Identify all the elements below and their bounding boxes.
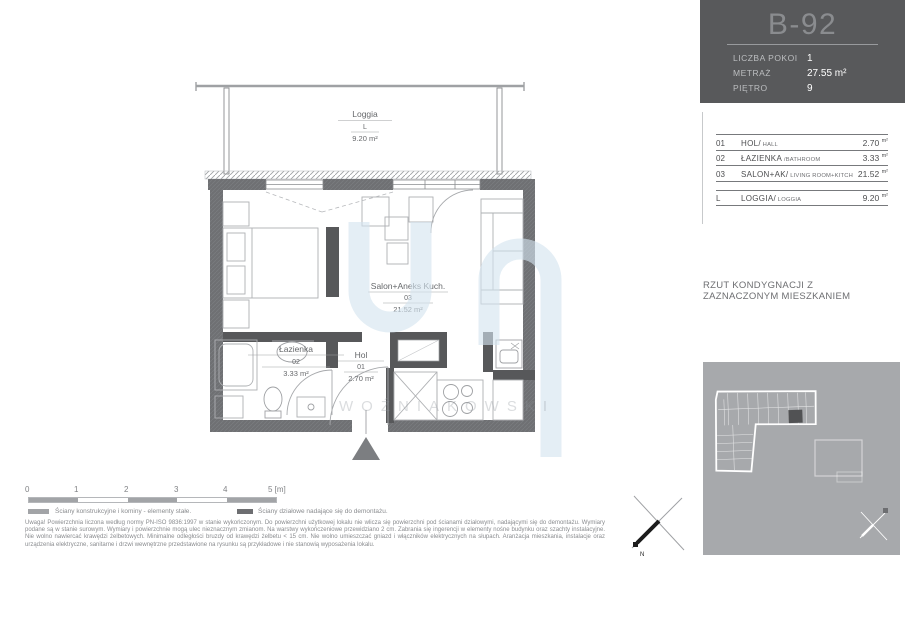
room-number: 02 — [716, 154, 741, 163]
table-row-loggia: L LOGGIA/ LOGGIA 9.20 m² — [716, 190, 888, 207]
legend-partition: Ściany działowe nadające się do demontaż… — [258, 508, 388, 515]
svg-text:Hol: Hol — [355, 350, 368, 360]
room-name: SALON+AK/ LIVING ROOM+KITCH — [741, 170, 858, 179]
wardrobe — [326, 227, 339, 297]
legend-swatch-partition — [237, 509, 253, 514]
loggia-post-left — [224, 88, 229, 174]
north-arrow — [637, 521, 659, 543]
disclaimer-text: Uwaga! Powierzchnia liczona według normy… — [25, 520, 605, 549]
key-building — [714, 388, 819, 473]
meta-row-rooms: LICZBA POKOI 1 — [700, 51, 905, 66]
keyplan-caption: RZUT KONDYGNACJI Z ZAZNACZONYM MIESZKANI… — [703, 281, 850, 302]
scale-segment — [177, 498, 226, 502]
svg-text:L: L — [363, 124, 367, 131]
card-divider — [727, 44, 878, 45]
svg-text:Salon+Aneks Kuch.: Salon+Aneks Kuch. — [371, 281, 445, 291]
toilet — [264, 387, 282, 418]
meta-value: 27.55 m² — [807, 67, 846, 80]
highlighted-unit — [788, 410, 802, 423]
key-map-drawing — [703, 362, 900, 555]
north-label: N — [640, 552, 644, 558]
meta-value: 9 — [807, 82, 813, 95]
room-name: LOGGIA/ LOGGIA — [741, 194, 863, 203]
insulation-hatch — [205, 171, 531, 179]
scale-tick-5: 5 [m] — [268, 485, 286, 494]
room-number: 01 — [716, 139, 741, 148]
room-table: 01 HOL/ HALL 2.70 m² 02 ŁAZIENKA /BATHRO… — [716, 134, 888, 206]
label-hol: Hol 01 2.70 m² — [338, 350, 384, 383]
adjacent-building-outline — [815, 440, 862, 476]
scale-tick-1: 1 — [74, 485, 78, 494]
room-name: HOL/ HALL — [741, 139, 863, 148]
svg-text:2.70 m²: 2.70 m² — [348, 374, 374, 383]
bed — [223, 228, 318, 298]
tilt-window-lines — [266, 192, 393, 212]
room-name: ŁAZIENKA /BATHROOM — [741, 154, 863, 163]
meta-label: PIĘTRO — [733, 82, 807, 95]
legend-structural: Ściany konstrukcyjne i kominy - elementy… — [55, 508, 191, 515]
kitchen-sink — [496, 340, 522, 368]
caption-line2: ZAZNACZONYM MIESZKANIEM — [703, 292, 850, 303]
scale-segment — [227, 498, 276, 502]
unit-id: B-92 — [700, 8, 905, 42]
pillow — [227, 266, 245, 294]
meta-row-area: METRAŻ 27.55 m² — [700, 66, 905, 81]
floor-drain-box — [297, 397, 325, 417]
svg-text:3.33 m²: 3.33 m² — [283, 369, 309, 378]
table-spacer — [716, 182, 888, 190]
meta-value: 1 — [807, 52, 813, 65]
scale-bar — [28, 497, 277, 503]
scale-tick-0: 0 — [25, 485, 29, 494]
scale-segment — [128, 498, 177, 502]
meta-label: LICZBA POKOI — [733, 52, 807, 65]
table-row: 02 ŁAZIENKA /BATHROOM 3.33 m² — [716, 150, 888, 166]
svg-text:9.20 m²: 9.20 m² — [352, 134, 378, 143]
chair — [409, 197, 433, 222]
room-number: L — [716, 194, 741, 203]
meta-label: METRAŻ — [733, 67, 807, 80]
adjacent-building-annex — [837, 472, 862, 482]
room-area: 2.70 m² — [863, 138, 888, 148]
scale-segment — [78, 498, 127, 502]
meta-row-floor: PIĘTRO 9 — [700, 81, 905, 96]
loggia-outline — [196, 82, 524, 174]
unit-card: B-92 LICZBA POKOI 1 METRAŻ 27.55 m² PIĘT… — [700, 0, 905, 103]
svg-text:Łazienka: Łazienka — [279, 344, 313, 354]
key-map — [703, 362, 900, 555]
room-area: 21.52 m² — [858, 169, 888, 179]
chair — [387, 243, 408, 264]
table-row: 01 HOL/ HALL 2.70 m² — [716, 134, 888, 150]
balcony-door-swing — [431, 190, 473, 233]
caption-line1: RZUT KONDYGNACJI Z — [703, 281, 850, 292]
scale-tick-4: 4 — [223, 485, 227, 494]
scale-tick-2: 2 — [124, 485, 128, 494]
table-row: 03 SALON+AK/ LIVING ROOM+KITCH 21.52 m² — [716, 165, 888, 182]
nightstand — [223, 300, 249, 328]
floorplan-sheet: Loggia L 9.20 m² Salon+Aneks Kuch. 03 21… — [0, 0, 905, 640]
label-loggia: Loggia L 9.20 m² — [338, 109, 392, 143]
entrance-arrow — [352, 437, 380, 460]
room-area: 3.33 m² — [863, 153, 888, 163]
shower-cabin — [398, 340, 439, 361]
svg-text:02: 02 — [292, 359, 300, 366]
watermark-text: WOŹNIAKOWSKI — [339, 398, 555, 415]
svg-text:Loggia: Loggia — [352, 109, 378, 119]
svg-text:01: 01 — [357, 364, 365, 371]
legend-swatch-structural — [28, 509, 49, 514]
panel-rule — [702, 112, 703, 224]
north-compass: N — [612, 486, 712, 571]
key-map-compass — [860, 508, 888, 540]
key-building-units — [714, 390, 817, 470]
loggia-post-right — [497, 88, 502, 174]
room-area: 9.20 m² — [863, 193, 888, 203]
pillow — [227, 233, 245, 261]
nightstand — [223, 202, 249, 226]
scale-tick-3: 3 — [174, 485, 178, 494]
scale-segment — [29, 498, 78, 502]
table — [385, 217, 408, 240]
room-number: 03 — [716, 170, 741, 179]
